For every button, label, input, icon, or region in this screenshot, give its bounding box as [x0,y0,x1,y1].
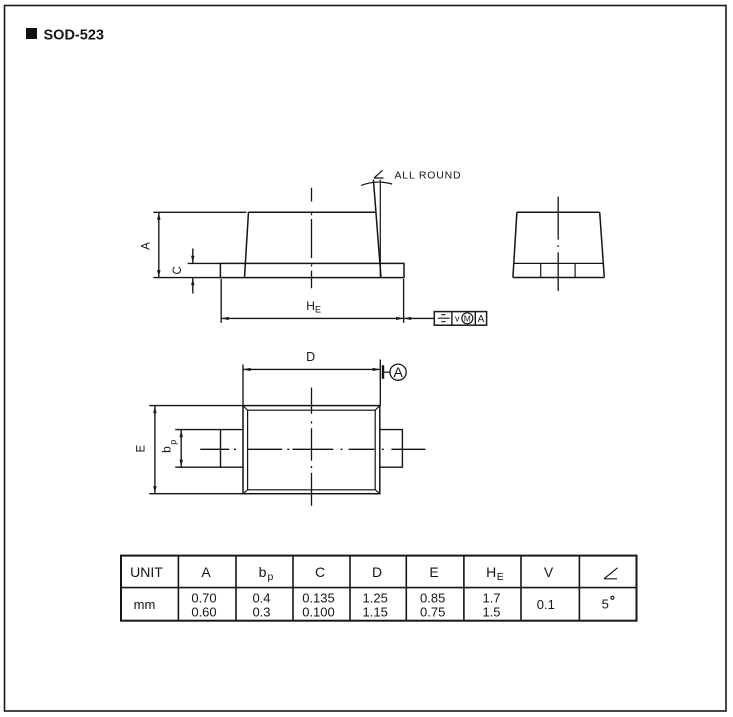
svg-text:A: A [141,242,153,250]
svg-text:b: b [160,446,174,453]
svg-text:0.1: 0.1 [537,597,555,612]
svg-text:0.3: 0.3 [252,605,270,620]
svg-text:1.15: 1.15 [363,605,388,620]
svg-text:D: D [372,564,382,580]
svg-text:SOD-523: SOD-523 [44,28,104,44]
svg-text:V: V [544,564,554,580]
svg-text:A: A [394,364,404,380]
svg-text:A: A [201,564,211,580]
svg-text:5: 5 [602,597,609,612]
svg-text:0.4: 0.4 [252,591,270,606]
svg-text:0.100: 0.100 [302,605,335,620]
svg-text:UNIT: UNIT [130,564,163,580]
svg-text:1.7: 1.7 [482,591,500,606]
svg-text:E: E [136,445,148,453]
svg-text:0.60: 0.60 [191,605,216,620]
svg-text:ALL ROUND: ALL ROUND [395,170,462,182]
svg-text:A: A [478,314,485,325]
svg-text:0.75: 0.75 [420,605,445,620]
svg-text:C: C [315,564,325,580]
svg-text:0.70: 0.70 [191,591,216,606]
svg-text:M: M [464,313,471,323]
svg-text:0.135: 0.135 [302,591,335,606]
svg-text:1.5: 1.5 [482,605,500,620]
svg-text:1.25: 1.25 [363,591,388,606]
svg-text:D: D [306,350,315,364]
svg-text:0.85: 0.85 [420,591,445,606]
svg-text:E: E [429,564,438,580]
svg-text:C: C [172,266,184,274]
svg-text:p: p [168,440,178,445]
svg-text:v: v [455,314,460,324]
svg-text:mm: mm [134,597,156,612]
